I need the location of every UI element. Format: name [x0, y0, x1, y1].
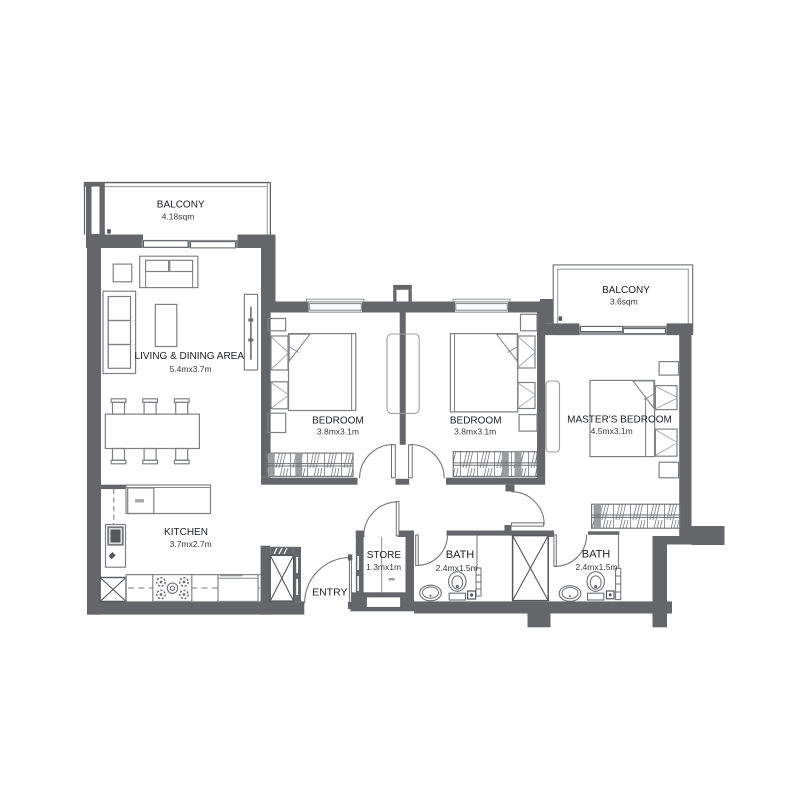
svg-text:3.8mx3.1m: 3.8mx3.1m: [454, 426, 496, 436]
svg-text:4.18sqm: 4.18sqm: [162, 212, 195, 222]
svg-text:BATH: BATH: [582, 548, 611, 560]
svg-text:KITCHEN: KITCHEN: [164, 527, 208, 538]
svg-text:4.5mx3.1m: 4.5mx3.1m: [591, 426, 633, 436]
svg-text:2.4mx1.5m: 2.4mx1.5m: [436, 563, 478, 573]
svg-text:3.6sqm: 3.6sqm: [610, 296, 638, 306]
svg-text:BEDROOM: BEDROOM: [312, 416, 364, 427]
svg-text:1.3mx1m: 1.3mx1m: [366, 562, 401, 572]
svg-text:BATH: BATH: [446, 549, 475, 561]
svg-text:STORE: STORE: [367, 550, 402, 561]
svg-text:LIVING & DINING AREA: LIVING & DINING AREA: [135, 351, 245, 362]
svg-text:BALCONY: BALCONY: [157, 200, 205, 211]
svg-text:3.8mx3.1m: 3.8mx3.1m: [317, 426, 359, 436]
svg-text:BEDROOM: BEDROOM: [450, 416, 502, 427]
svg-text:3.7mx2.7m: 3.7mx2.7m: [170, 539, 212, 549]
svg-text:2.4mx1.5m: 2.4mx1.5m: [575, 562, 617, 572]
svg-text:BALCONY: BALCONY: [602, 285, 650, 296]
svg-text:5.4mx3.7m: 5.4mx3.7m: [170, 364, 212, 374]
svg-text:MASTER'S BEDROOM: MASTER'S BEDROOM: [567, 414, 672, 425]
svg-text:ENTRY: ENTRY: [312, 587, 347, 599]
